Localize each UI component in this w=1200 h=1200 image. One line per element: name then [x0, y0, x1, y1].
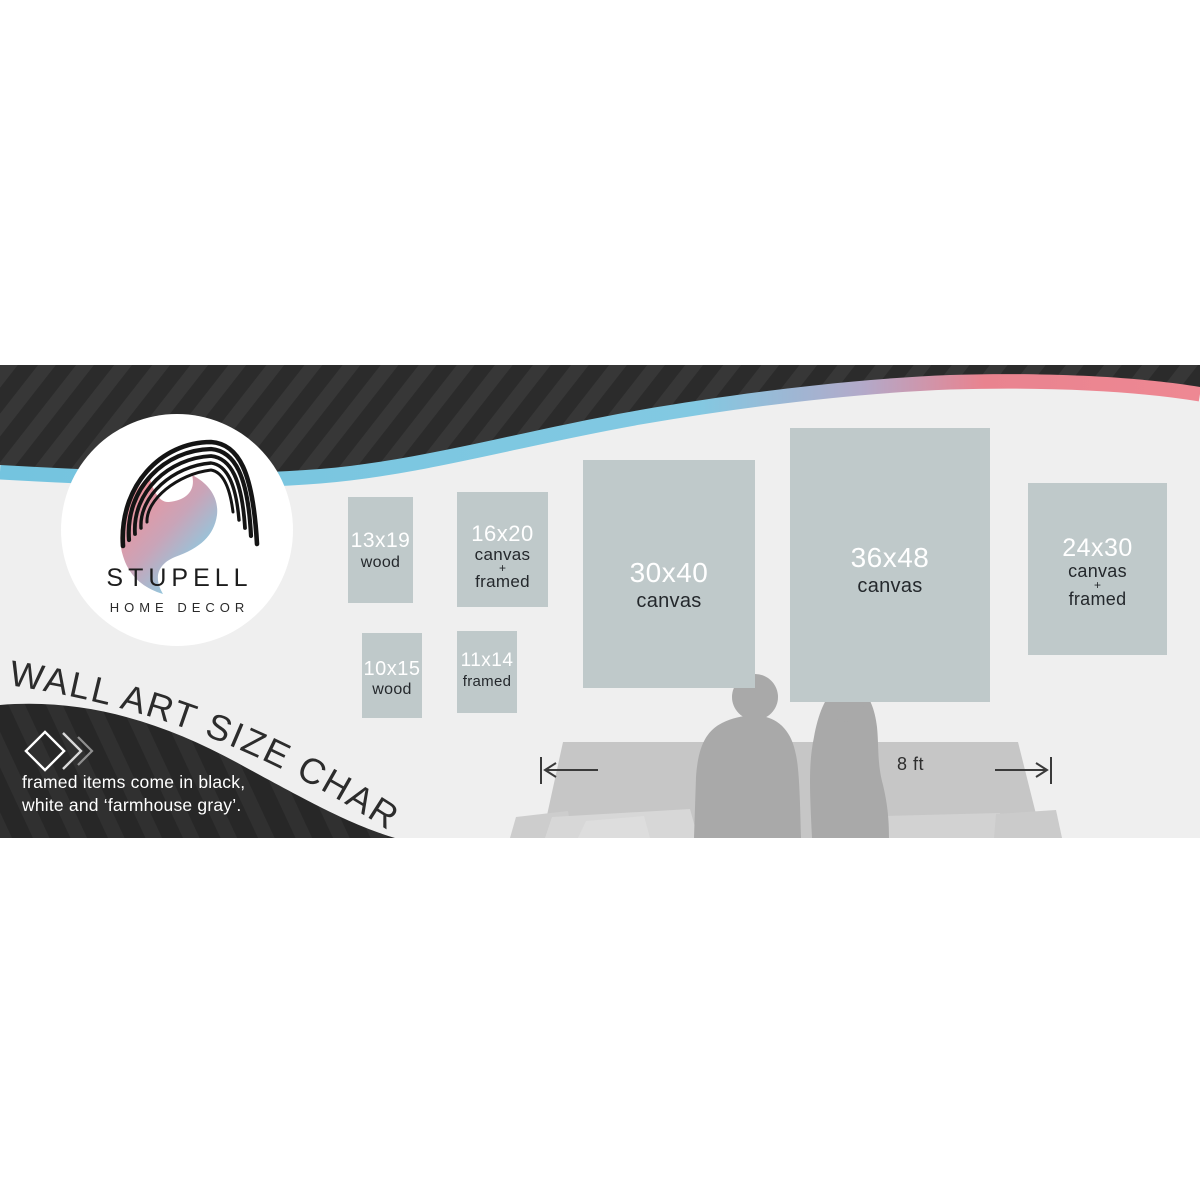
size-label: 11x14	[461, 650, 514, 672]
size-label: 36x48	[851, 543, 930, 573]
size-type: framed	[475, 573, 530, 591]
size-label: 30x40	[630, 558, 709, 588]
size-box-24x30: 24x30 canvas + framed	[1028, 483, 1167, 655]
wall-art-size-chart-banner: WALL ART SIZE CHART STUPELL HOME DECOR f…	[0, 365, 1200, 838]
size-type: framed	[463, 672, 512, 691]
measurement-label: 8 ft	[897, 754, 924, 775]
size-type: canvas	[636, 588, 701, 614]
note-line-1: framed items come in black,	[22, 771, 245, 794]
person-silhouette-man	[694, 674, 801, 838]
brand-name: STUPELL	[61, 564, 293, 593]
couch-seat-right	[884, 813, 1002, 838]
size-type: wood	[372, 680, 411, 700]
size-box-16x20: 16x20 canvas + framed	[457, 492, 548, 607]
size-box-13x19: 13x19 wood	[348, 497, 413, 603]
size-type: framed	[1069, 590, 1127, 609]
size-type: wood	[361, 553, 400, 573]
size-label: 24x30	[1062, 534, 1133, 562]
brand-logo-circle: STUPELL HOME DECOR	[61, 414, 293, 646]
size-box-11x14: 11x14 framed	[457, 631, 517, 713]
size-label: 10x15	[364, 658, 421, 680]
brand-tagline: HOME DECOR	[61, 600, 293, 615]
size-box-10x15: 10x15 wood	[362, 633, 422, 718]
size-label: 16x20	[471, 521, 533, 546]
size-box-36x48: 36x48 canvas	[790, 428, 990, 702]
size-type: canvas	[857, 573, 922, 599]
note-line-2: white and ‘farmhouse gray’.	[22, 794, 245, 817]
size-box-30x40: 30x40 canvas	[583, 460, 755, 688]
couch-armrest-right	[994, 810, 1062, 838]
framed-items-note: framed items come in black, white and ‘f…	[22, 771, 245, 817]
person-silhouette-woman	[810, 682, 889, 838]
size-label: 13x19	[351, 529, 411, 553]
